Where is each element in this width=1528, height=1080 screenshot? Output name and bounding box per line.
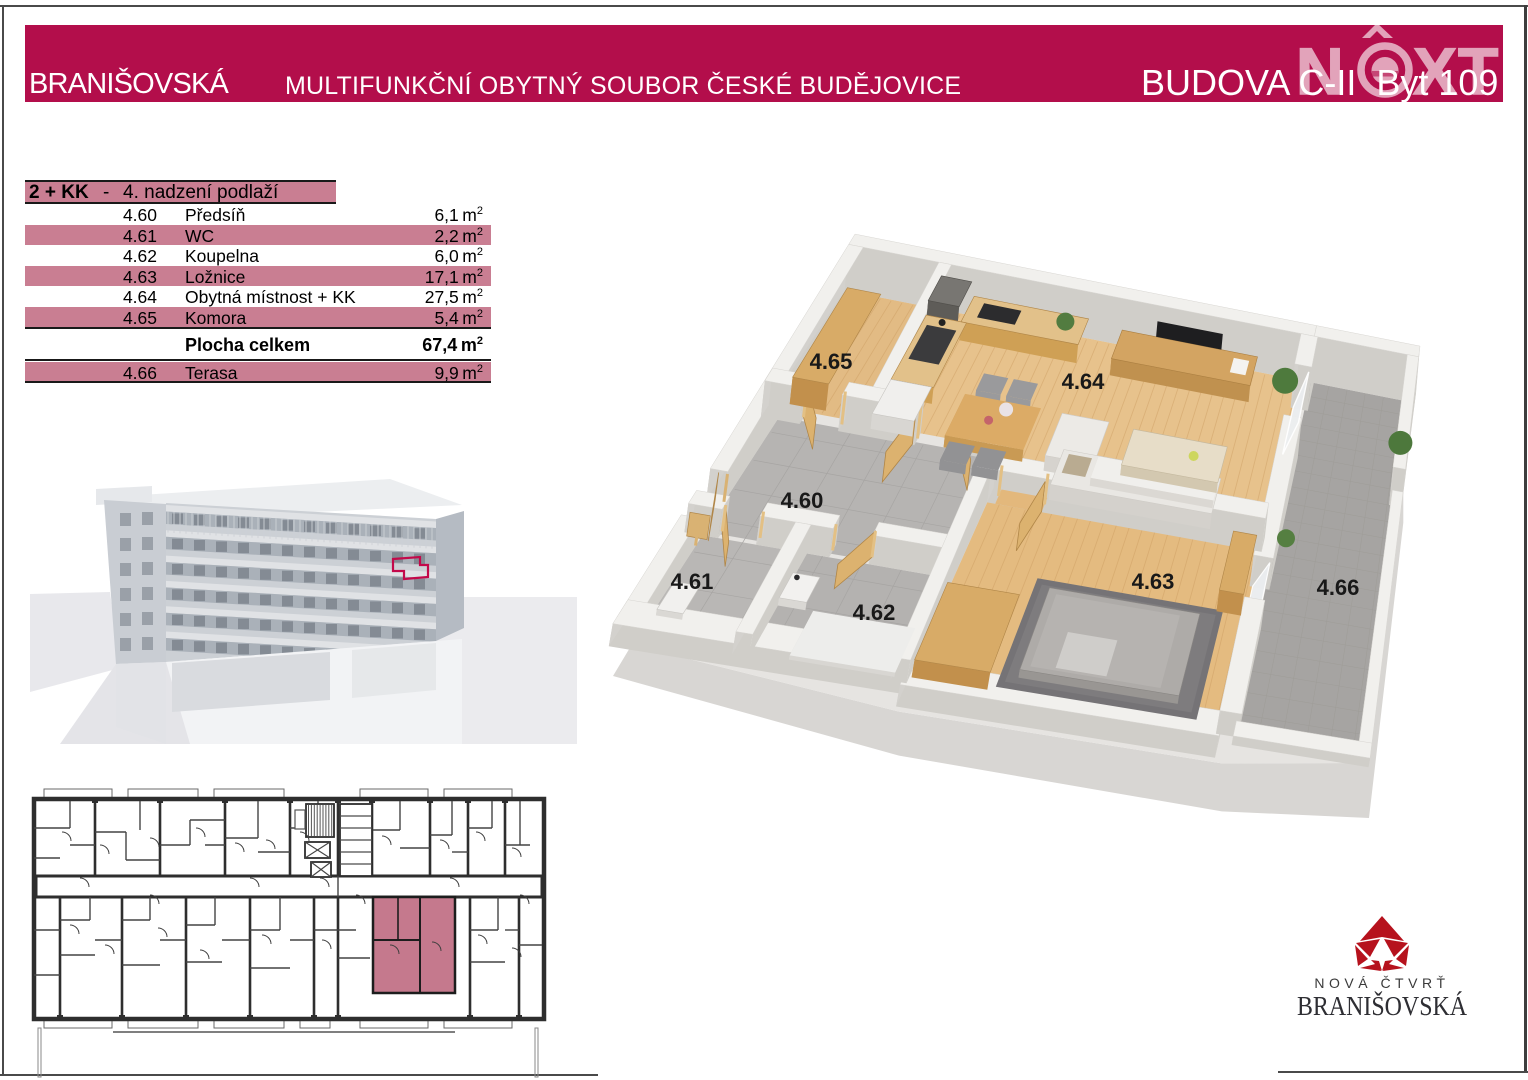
svg-text:NOVÁ ČTVRŤ: NOVÁ ČTVRŤ	[1314, 975, 1449, 991]
svg-text:BRANIŠOVSKÁ: BRANIŠOVSKÁ	[1297, 990, 1467, 1021]
